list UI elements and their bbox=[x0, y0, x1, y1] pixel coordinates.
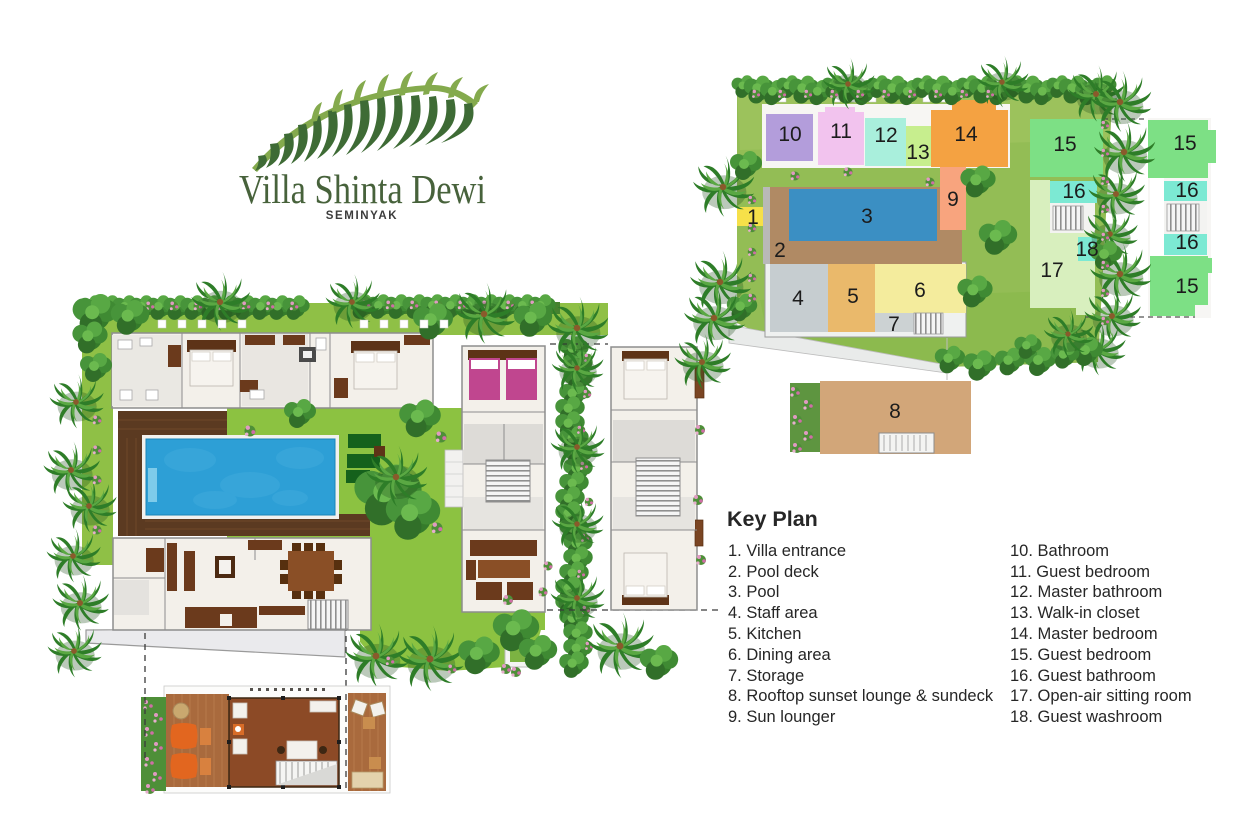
svg-text:5. Kitchen: 5. Kitchen bbox=[728, 625, 801, 643]
svg-text:15. Guest bedroom: 15. Guest bedroom bbox=[1010, 646, 1151, 664]
svg-text:17: 17 bbox=[1040, 259, 1063, 282]
svg-text:10: 10 bbox=[778, 123, 801, 146]
svg-text:1. Villa entrance: 1. Villa entrance bbox=[728, 542, 846, 560]
svg-text:16: 16 bbox=[1175, 179, 1198, 202]
svg-text:16: 16 bbox=[1062, 180, 1085, 203]
svg-text:13: 13 bbox=[906, 141, 929, 164]
svg-text:1: 1 bbox=[747, 206, 759, 229]
svg-text:9: 9 bbox=[947, 188, 959, 211]
svg-text:SEMINYAK: SEMINYAK bbox=[326, 210, 398, 222]
svg-text:2. Pool deck: 2. Pool deck bbox=[728, 563, 820, 581]
svg-text:12. Master bathroom: 12. Master bathroom bbox=[1010, 583, 1162, 601]
svg-text:11. Guest bedroom: 11. Guest bedroom bbox=[1010, 563, 1150, 581]
svg-text:15: 15 bbox=[1053, 133, 1076, 156]
svg-text:6: 6 bbox=[914, 279, 926, 302]
svg-text:3: 3 bbox=[861, 205, 873, 228]
svg-text:4: 4 bbox=[792, 287, 804, 310]
svg-text:8: 8 bbox=[889, 400, 901, 423]
svg-text:9. Sun lounger: 9. Sun lounger bbox=[728, 708, 836, 726]
svg-text:16. Guest bathroom: 16. Guest bathroom bbox=[1010, 667, 1156, 685]
svg-text:11: 11 bbox=[830, 120, 852, 143]
svg-text:6. Dining area: 6. Dining area bbox=[728, 646, 832, 664]
svg-text:4. Staff area: 4. Staff area bbox=[728, 604, 818, 622]
svg-text:18: 18 bbox=[1075, 238, 1098, 261]
svg-text:17. Open-air sitting room: 17. Open-air sitting room bbox=[1010, 687, 1192, 705]
svg-text:15: 15 bbox=[1173, 132, 1196, 155]
svg-text:8. Rooftop sunset lounge & sun: 8. Rooftop sunset lounge & sundeck bbox=[728, 687, 994, 705]
svg-text:7. Storage: 7. Storage bbox=[728, 667, 804, 685]
svg-text:16: 16 bbox=[1175, 231, 1198, 254]
svg-text:2: 2 bbox=[774, 239, 786, 262]
svg-text:12: 12 bbox=[874, 124, 897, 147]
svg-text:15: 15 bbox=[1175, 275, 1198, 298]
svg-text:14: 14 bbox=[954, 123, 978, 146]
svg-text:5: 5 bbox=[847, 285, 859, 308]
svg-text:3. Pool: 3. Pool bbox=[728, 583, 779, 601]
svg-text:Key Plan: Key Plan bbox=[727, 507, 818, 531]
svg-text:18. Guest washroom: 18. Guest washroom bbox=[1010, 708, 1162, 726]
svg-text:14. Master bedroom: 14. Master bedroom bbox=[1010, 625, 1158, 643]
svg-text:10. Bathroom: 10. Bathroom bbox=[1010, 542, 1109, 560]
svg-text:Villa Shinta Dewi: Villa Shinta Dewi bbox=[239, 166, 486, 212]
svg-text:13. Walk-in closet: 13. Walk-in closet bbox=[1010, 604, 1140, 622]
svg-text:7: 7 bbox=[888, 313, 900, 336]
